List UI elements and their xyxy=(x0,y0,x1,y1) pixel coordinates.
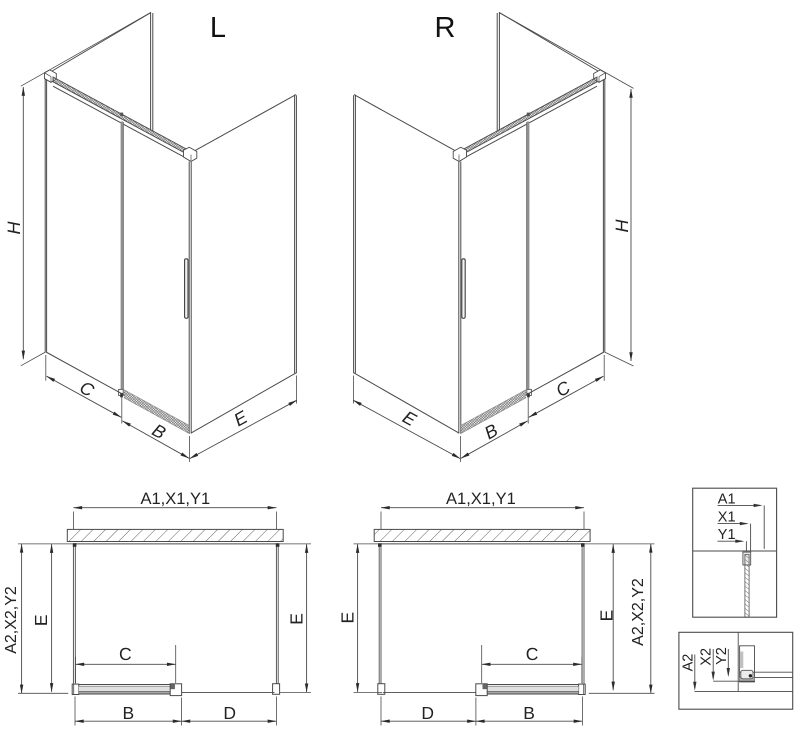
svg-text:A1,X1,Y1: A1,X1,Y1 xyxy=(140,490,210,508)
svg-text:E: E xyxy=(338,612,358,624)
svg-text:A2: A2 xyxy=(681,654,697,672)
svg-text:R: R xyxy=(435,12,456,44)
svg-text:X2: X2 xyxy=(699,648,715,666)
svg-text:X1: X1 xyxy=(718,509,736,525)
svg-text:B: B xyxy=(149,420,169,443)
svg-text:A1,X1,Y1: A1,X1,Y1 xyxy=(446,490,516,508)
svg-text:B: B xyxy=(523,703,535,723)
svg-text:H: H xyxy=(4,221,24,235)
svg-text:D: D xyxy=(421,703,434,723)
svg-text:Y1: Y1 xyxy=(718,527,736,543)
svg-text:A2,X2,Y2: A2,X2,Y2 xyxy=(630,578,647,646)
svg-text:E: E xyxy=(597,610,617,622)
svg-text:C: C xyxy=(119,644,132,664)
svg-text:A2,X2,Y2: A2,X2,Y2 xyxy=(3,586,20,654)
svg-text:A1: A1 xyxy=(718,491,736,507)
svg-text:Y2: Y2 xyxy=(714,647,730,665)
svg-text:E: E xyxy=(287,613,307,625)
svg-text:C: C xyxy=(553,377,575,401)
svg-text:B: B xyxy=(481,420,501,443)
svg-text:L: L xyxy=(210,12,226,44)
svg-text:E: E xyxy=(31,614,51,626)
svg-text:C: C xyxy=(76,377,98,401)
svg-text:B: B xyxy=(122,703,134,723)
svg-text:H: H xyxy=(612,219,632,233)
svg-text:D: D xyxy=(223,703,236,723)
svg-text:C: C xyxy=(526,644,539,664)
